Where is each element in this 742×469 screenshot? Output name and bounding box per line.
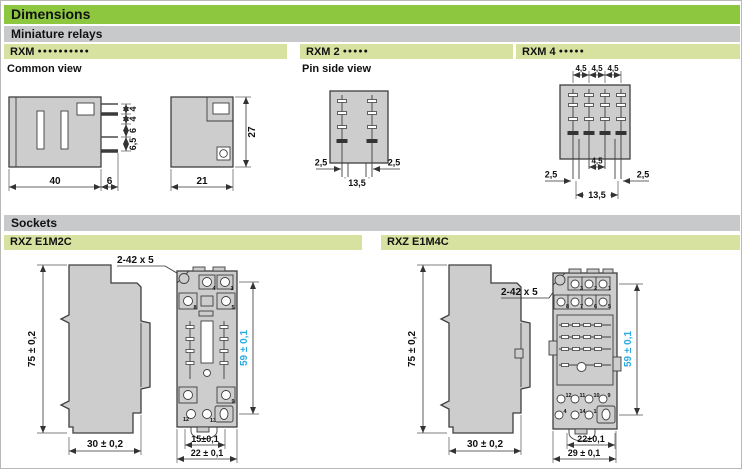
terminal-8: 8 [566, 304, 569, 310]
dim-rxm4-top-3: 4,5 [607, 64, 619, 73]
screw-callout-e1m4c: 2-42 x 5 [501, 287, 538, 298]
relay-slot [37, 111, 44, 149]
dimensions-page: Dimensions Miniature relays RXM ●●●●●●●●… [0, 0, 742, 469]
relay-front-window [213, 103, 229, 114]
relay-slot [61, 111, 68, 149]
dim-front-width: 21 [196, 176, 208, 187]
pin-side-view-label: Pin side view [302, 63, 371, 75]
dim-e1m4c-inner-width: 22±0,1 [577, 434, 604, 444]
dim-gap-3: 6 [128, 128, 138, 133]
rxm4-pin-view-drawing: 4,5 4,5 4,5 4,5 2,5 2,5 13,5 [515, 57, 742, 215]
screw-callout-e1m2c: 2-42 x 5 [117, 255, 154, 266]
terminal-7: 7 [580, 304, 583, 310]
dim-rxm4-top-2: 4,5 [591, 64, 603, 73]
dim-rxm2-right: 2,5 [388, 158, 401, 168]
dim-gap-4: 6,5 [128, 138, 138, 151]
dim-rxm4-right: 2,5 [637, 170, 650, 180]
rxm2-model: RXM 2 [306, 46, 340, 58]
terminal-2: 2 [594, 286, 597, 292]
terminal-5: 5 [608, 304, 611, 310]
dim-e1m2c-width: 22 ± 0,1 [191, 448, 223, 458]
terminal-9: 9 [608, 393, 611, 399]
e1m4c-front-view-drawing: 2-42 x 5 3 2 1 8 [497, 251, 742, 469]
section-sockets: Sockets [4, 215, 740, 231]
relay-window [77, 103, 94, 115]
relay-front-view-drawing: 27 21 [167, 87, 259, 205]
pin-spacing-dim-chain: 4 4 6 6,5 [121, 104, 138, 151]
terminal-5: 5 [232, 305, 235, 311]
terminal-12: 12 [183, 417, 189, 423]
dim-socket-height: 75 ± 0,2 [407, 331, 418, 368]
terminal-14: 14 [580, 409, 587, 415]
terminal-row-2: 8 7 6 5 [554, 295, 611, 310]
dim-pin-length: 6 [107, 176, 113, 187]
dim-rxm4-top-1: 4,5 [575, 64, 587, 73]
terminal-1: 1 [608, 286, 611, 292]
column-header-rxm2: RXM 2 ●●●●● [300, 44, 513, 59]
column-header-e1m4c: RXZ E1M4C [381, 235, 740, 250]
dim-e1m4c-height: 59 ± 0,1 [623, 331, 634, 368]
dim-body-width: 40 [49, 176, 61, 187]
dim-e1m4c-width: 29 ± 0,1 [568, 448, 600, 458]
column-header-rxm: RXM ●●●●●●●●●● [4, 44, 287, 59]
dim-rxm4-left: 2,5 [545, 170, 558, 180]
terminal-6: 6 [594, 304, 597, 310]
e1m2c-front-view-drawing: 2-42 x 5 4 1 8 5 [113, 251, 285, 469]
dim-socket-height: 75 ± 0,2 [27, 331, 38, 368]
dim-e1m2c-inner-width: 15±0,1 [191, 434, 218, 444]
dim-rxm4-span: 13,5 [588, 190, 606, 200]
terminal-9: 9 [232, 399, 235, 405]
dim-rxm4-middle: 4,5 [591, 157, 603, 166]
rxm4-dots: ●●●●● [559, 48, 585, 55]
relay-front-button [220, 150, 228, 158]
dim-rxm2-span: 13,5 [348, 178, 366, 188]
dim-e1m2c-height: 59 ± 0,1 [239, 330, 250, 367]
rxm2-dots: ●●●●● [343, 48, 369, 55]
column-header-e1m2c: RXZ E1M2C [4, 235, 362, 250]
rxm-dots: ●●●●●●●●●● [38, 48, 90, 55]
dim-rxm2-left: 2,5 [315, 158, 328, 168]
terminal-11: 11 [580, 393, 586, 399]
rxm2-pin-view-drawing: 2,5 2,5 13,5 [300, 85, 486, 211]
terminal-1: 1 [231, 286, 234, 292]
terminal-12: 12 [566, 393, 572, 399]
relay-side-view-drawing: 4 4 6 6,5 40 6 [5, 87, 163, 205]
side-clip-left [549, 341, 557, 355]
mounting-hole [179, 274, 189, 284]
dim-front-height: 27 [247, 126, 258, 138]
terminal-8: 8 [194, 305, 197, 311]
dim-gap-1: 4 [128, 106, 138, 111]
section-miniature-relays: Miniature relays [4, 26, 740, 42]
terminal-10: 10 [594, 393, 600, 399]
dim-gap-2: 4 [128, 116, 138, 121]
page-title: Dimensions [4, 5, 740, 24]
mounting-hole [555, 275, 565, 285]
side-clip-right [613, 357, 621, 371]
terminal-3: 3 [580, 286, 583, 292]
common-view-label: Common view [7, 63, 82, 75]
terminal-row-1: 3 2 1 [568, 277, 611, 292]
rxm-model: RXM [10, 46, 34, 58]
